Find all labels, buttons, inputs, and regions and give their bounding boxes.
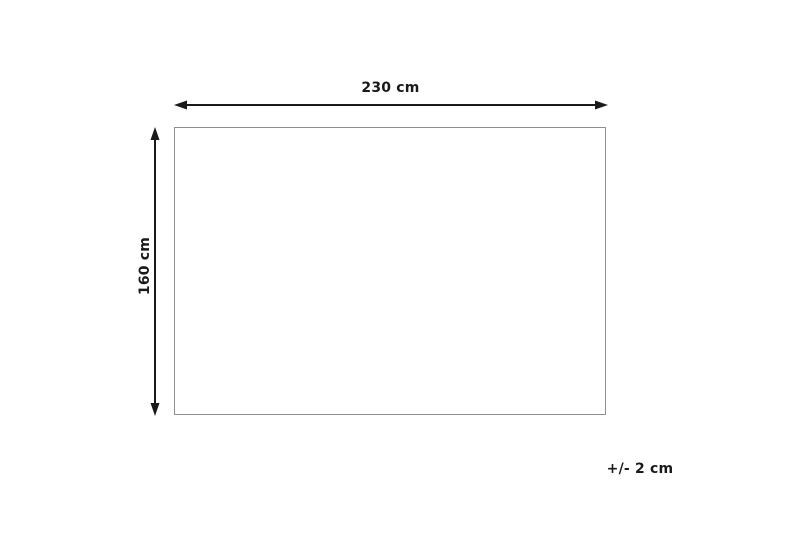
width-label: 230 cm	[174, 80, 607, 96]
width-dimension-arrow-icon	[174, 98, 608, 112]
width-arrow-right-head-icon	[595, 101, 608, 110]
dimension-diagram: 230 cm 160 cm +/- 2 cm	[0, 0, 800, 533]
tolerance-label: +/- 2 cm	[580, 461, 700, 477]
width-arrow-left-head-icon	[174, 101, 187, 110]
height-label: 160 cm	[137, 216, 153, 316]
height-arrow-top-head-icon	[151, 127, 160, 140]
height-arrow-bottom-head-icon	[151, 403, 160, 416]
rug-outline	[174, 127, 606, 415]
